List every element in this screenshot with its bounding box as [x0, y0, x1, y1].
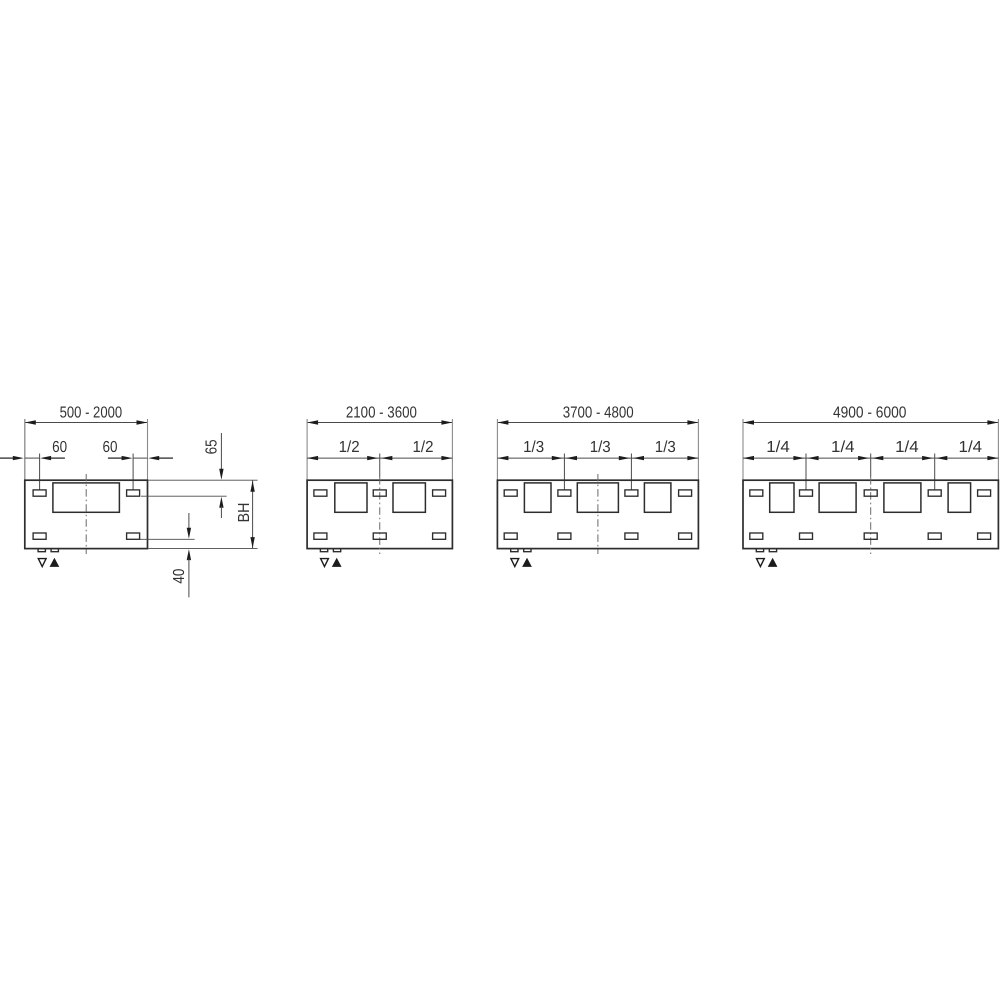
svg-text:1/2: 1/2: [339, 439, 360, 456]
svg-text:1/4: 1/4: [831, 439, 855, 456]
svg-text:1/4: 1/4: [895, 439, 919, 456]
svg-text:65: 65: [204, 439, 221, 454]
svg-text:1/4: 1/4: [959, 439, 983, 456]
svg-text:1/4: 1/4: [766, 439, 790, 456]
svg-text:4900 - 6000: 4900 - 6000: [833, 404, 907, 421]
svg-text:1/3: 1/3: [590, 439, 611, 456]
svg-text:500 - 2000: 500 - 2000: [60, 404, 123, 421]
svg-text:3700 - 4800: 3700 - 4800: [563, 404, 634, 421]
svg-text:1/3: 1/3: [523, 439, 544, 456]
svg-text:1/3: 1/3: [655, 439, 676, 456]
svg-text:2100 - 3600: 2100 - 3600: [346, 404, 417, 421]
svg-text:60: 60: [103, 439, 118, 456]
svg-text:BH: BH: [236, 503, 253, 523]
svg-text:60: 60: [52, 439, 67, 456]
svg-text:1/2: 1/2: [413, 439, 434, 456]
svg-text:40: 40: [171, 569, 188, 584]
